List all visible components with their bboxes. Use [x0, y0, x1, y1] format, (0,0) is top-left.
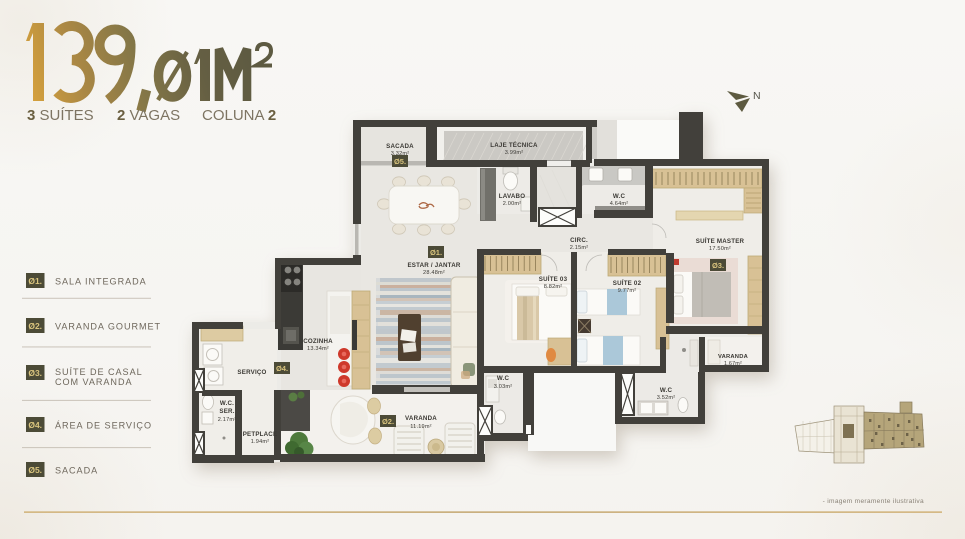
svg-text:3.52m²: 3.52m²: [657, 395, 676, 401]
svg-text:SERVIÇO: SERVIÇO: [237, 369, 266, 376]
svg-text:2.17m²: 2.17m²: [218, 417, 237, 423]
svg-text:W.C: W.C: [613, 193, 626, 200]
svg-text:COZINHA: COZINHA: [303, 338, 333, 345]
svg-text:Ø2.: Ø2.: [382, 417, 394, 426]
svg-text:SUÍTE 03: SUÍTE 03: [539, 275, 568, 283]
svg-text:SACADA: SACADA: [55, 466, 98, 476]
svg-text:SUÍTE DE CASAL: SUÍTE DE CASAL: [55, 367, 143, 377]
svg-text:ESTAR / JANTAR: ESTAR / JANTAR: [407, 262, 460, 269]
svg-text:SALA INTEGRADA: SALA INTEGRADA: [55, 277, 147, 287]
svg-text:Ø1.: Ø1.: [28, 276, 42, 286]
svg-text:4.64m²: 4.64m²: [610, 201, 629, 207]
svg-text:3.99m²: 3.99m²: [505, 150, 524, 156]
svg-text:W.C: W.C: [660, 387, 673, 394]
svg-text:LAJE TÉCNICA: LAJE TÉCNICA: [490, 141, 538, 149]
svg-text:2 VAGAS: 2 VAGAS: [117, 107, 180, 124]
svg-text:1.67m²: 1.67m²: [724, 361, 742, 367]
svg-text:VARANDA: VARANDA: [718, 354, 749, 360]
svg-text:11.19m²: 11.19m²: [410, 424, 432, 430]
svg-text:2.00m²: 2.00m²: [503, 201, 522, 207]
svg-text:Ø1.: Ø1.: [430, 248, 442, 257]
svg-text:VARANDA GOURMET: VARANDA GOURMET: [55, 322, 161, 332]
svg-text:VARANDA: VARANDA: [405, 415, 437, 422]
svg-text:W.C: W.C: [497, 375, 510, 382]
svg-text:PETPLACE: PETPLACE: [243, 431, 278, 438]
svg-text:2.15m²: 2.15m²: [570, 245, 589, 251]
svg-text:3.03m²: 3.03m²: [494, 384, 513, 390]
svg-text:ÁREA DE SERVIÇO: ÁREA DE SERVIÇO: [55, 421, 152, 431]
svg-text:28.48m²: 28.48m²: [423, 270, 445, 276]
svg-text:Ø3.: Ø3.: [712, 261, 724, 270]
svg-text:Ø4.: Ø4.: [28, 420, 42, 430]
svg-text:Ø4.: Ø4.: [276, 364, 288, 373]
svg-text:COM VARANDA: COM VARANDA: [55, 377, 132, 387]
svg-text:SUÍTE MASTER: SUÍTE MASTER: [696, 237, 745, 245]
svg-text:9.77m²: 9.77m²: [618, 288, 637, 294]
svg-text:SACADA: SACADA: [386, 143, 414, 150]
svg-text:8.82m²: 8.82m²: [544, 284, 563, 290]
svg-text:1.94m²: 1.94m²: [251, 439, 270, 445]
svg-text:13.34m²: 13.34m²: [307, 346, 329, 352]
svg-text:Ø3.: Ø3.: [28, 368, 42, 378]
svg-text:SUÍTE 02: SUÍTE 02: [613, 279, 642, 287]
svg-text:- imagem meramente ilustrativa: - imagem meramente ilustrativa: [823, 498, 924, 505]
svg-text:Ø5.: Ø5.: [28, 465, 42, 475]
svg-text:W.C.: W.C.: [220, 400, 234, 407]
svg-text:17.50m²: 17.50m²: [709, 246, 731, 252]
svg-text:N: N: [753, 90, 761, 102]
svg-text:COLUNA 2: COLUNA 2: [202, 107, 276, 124]
svg-text:Ø5.: Ø5.: [394, 157, 406, 166]
svg-text:Ø2.: Ø2.: [28, 321, 42, 331]
svg-text:3 SUÍTES: 3 SUÍTES: [27, 107, 94, 124]
svg-text:LAVABO: LAVABO: [499, 193, 525, 200]
svg-text:SER.: SER.: [219, 408, 234, 415]
svg-text:CIRC.: CIRC.: [570, 237, 588, 244]
